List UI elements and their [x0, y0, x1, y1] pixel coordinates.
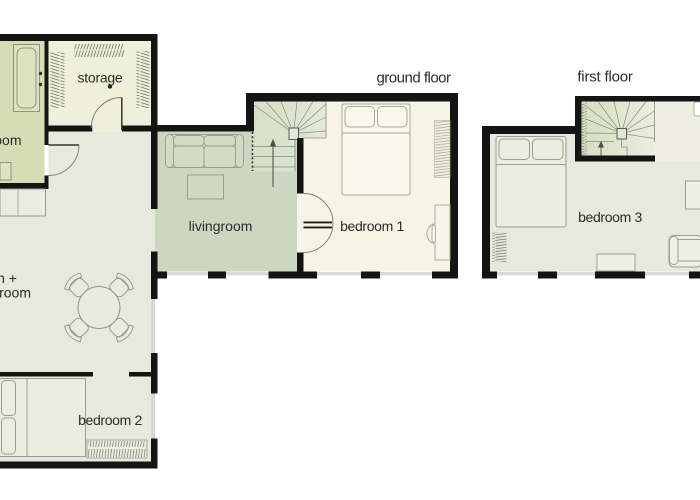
svg-text:ground floor: ground floor: [376, 70, 451, 87]
svg-text:storage: storage: [78, 70, 123, 86]
svg-text:bedroom 3: bedroom 3: [578, 209, 642, 225]
svg-text:bedroom 2: bedroom 2: [78, 412, 142, 428]
svg-text:bathroom: bathroom: [0, 132, 22, 148]
svg-text:first floor: first floor: [577, 69, 633, 86]
svg-text:diningroom: diningroom: [0, 285, 31, 301]
svg-text:bedroom 1: bedroom 1: [340, 218, 404, 234]
svg-text:livingroom: livingroom: [189, 218, 253, 234]
